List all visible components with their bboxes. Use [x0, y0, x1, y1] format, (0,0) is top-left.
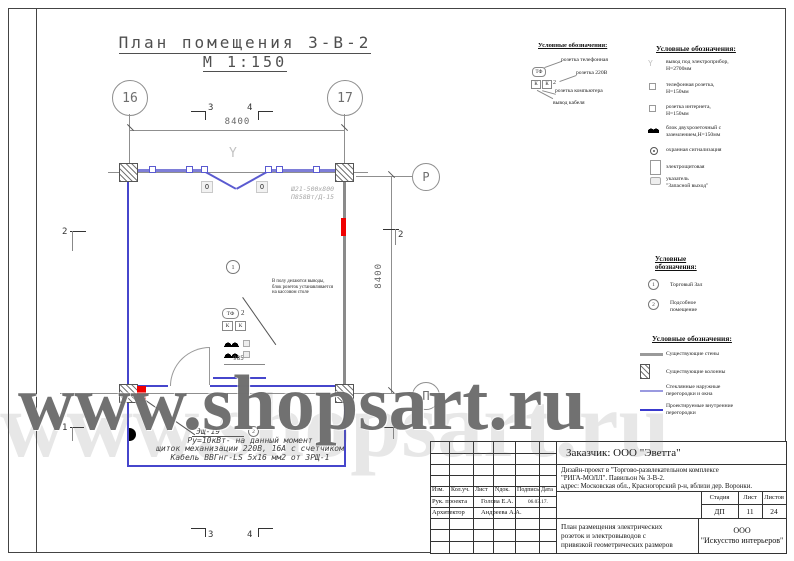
- tb-company-line1: ООО: [698, 526, 786, 536]
- legend-label: Н=2700мм: [666, 66, 691, 72]
- k-socket-label: К: [235, 321, 246, 331]
- legend-rooms: Условные обозначения: 1 Торговый Зал 2 П…: [648, 255, 758, 317]
- tb-line: [431, 475, 556, 476]
- column-top-left: [119, 163, 138, 182]
- drawing-title-line1: План помещения 3-В-2: [119, 33, 372, 54]
- electric-output-icon: Y: [648, 59, 653, 68]
- mark-tick: [259, 528, 273, 529]
- electric-output-symbol: Y: [229, 146, 237, 161]
- legend-label: указатель: [666, 176, 689, 182]
- tb-line: [473, 442, 474, 553]
- legend-title-line1: Условные: [655, 255, 686, 263]
- glass-wall-swatch: [640, 390, 663, 392]
- alarm-symbol-o: О: [201, 181, 213, 193]
- tf-count: 2: [241, 309, 245, 317]
- legend-label: телефонная розетка,: [666, 82, 714, 88]
- shield-label: Эщ-19: [196, 427, 220, 436]
- electric-room-icon: [650, 160, 661, 175]
- new-partition-swatch: [640, 409, 663, 411]
- legend-label: помещение: [670, 307, 697, 313]
- note-gray-line: П858Вт/Д-15: [291, 193, 334, 201]
- tb-stage-v: ДП: [701, 507, 738, 516]
- tb-line: [431, 453, 556, 454]
- counter-line: [213, 377, 266, 379]
- tb-sheet-title-line: План размещения электрических: [561, 523, 696, 532]
- legend-label: Стеклянные наружные: [666, 384, 720, 390]
- k-symbol: К: [531, 80, 541, 89]
- tb-col-data: Дата: [541, 487, 553, 493]
- grid-line: [344, 114, 345, 163]
- tb-date-1: 06.03.17.: [528, 499, 548, 505]
- tb-line: [539, 442, 540, 553]
- tb-company-line2: "Искусство интерьеров": [698, 536, 786, 546]
- wall-glass-top: [137, 169, 205, 172]
- tb-list-v: 11: [738, 507, 762, 516]
- drawing-title: План помещения 3-В-2 М 1:150: [100, 33, 390, 71]
- red-wall-mark: [341, 218, 346, 236]
- tb-line: [431, 518, 556, 519]
- glass-joint: [201, 166, 208, 173]
- legend-room-num: 1: [648, 279, 659, 290]
- existing-column-swatch: [640, 364, 650, 379]
- mark-tick: [205, 111, 206, 120]
- tb-line: [431, 507, 556, 508]
- mark-3-bottom: 3: [208, 530, 213, 540]
- double-socket-icon: [648, 126, 659, 133]
- dim-985-line: [224, 364, 265, 365]
- axis-bubble-Pi: П: [412, 382, 440, 410]
- legend-label: электрощитовая: [666, 164, 704, 170]
- tb-col-ndok: Nдок.: [495, 487, 510, 493]
- legend-label: заземлением,Н=150мм: [666, 132, 720, 138]
- mark-tick: [259, 111, 273, 112]
- drawing-scale: М 1:150: [203, 53, 287, 72]
- legend-label: вывод кабеля: [553, 100, 585, 106]
- leader-line: [559, 75, 576, 82]
- tb-project-line: адрес: Московская обл., Красногорский р-…: [561, 483, 783, 491]
- dimension-line-right: [391, 177, 392, 393]
- tb-project-line: Дизайн-проект в "Торгово-развлекательном…: [561, 467, 783, 475]
- note-power: Ру=10кВт- на данный момент щиток механиз…: [130, 437, 370, 462]
- n2-symbol: 2: [553, 80, 556, 86]
- section-mark-1-left: 1: [62, 423, 67, 433]
- legend-symbols: Условные обозначения: Y вывод под электр…: [648, 44, 758, 194]
- legend-label: Существующие стены: [666, 351, 719, 357]
- legend-sockets: Условные обозначения: розетка телефонная…: [530, 42, 645, 112]
- tb-line: [701, 504, 786, 505]
- tb-sheet-title: План размещения электрических розеток и …: [561, 523, 696, 550]
- tb-col-list: Лист: [475, 487, 488, 493]
- legend-title-line2: обозначения:: [655, 263, 697, 271]
- dim-right-value: 8400: [374, 263, 384, 289]
- legend-label: Н=150мм: [666, 111, 689, 117]
- mark-4-top: 4: [247, 103, 252, 113]
- column-bottom-right: [335, 384, 354, 403]
- glass-joint: [186, 166, 193, 173]
- door-leaf: [209, 347, 210, 385]
- note-gray-line: Ш21-500х800: [291, 185, 334, 193]
- glass-joint: [149, 166, 156, 173]
- grid-line: [60, 393, 412, 394]
- internet-socket-icon: [649, 105, 656, 112]
- mark-tick: [393, 427, 394, 439]
- alarm-icon: [650, 147, 658, 155]
- legend-title: Условные обозначения:: [538, 42, 607, 49]
- leader-line: [544, 61, 561, 68]
- mark-tick: [72, 231, 73, 251]
- grid-line: [108, 172, 368, 173]
- section-mark-2-left: 2: [62, 227, 67, 237]
- legend-walls: Условные обозначения: Существующие стены…: [640, 334, 785, 420]
- legend-label: охранная сигнализация: [666, 147, 722, 153]
- note-center: В полу делаются выводы, блок розеток уст…: [272, 279, 357, 296]
- mark-tick: [205, 528, 206, 537]
- tb-project: Дизайн-проект в "Торгово-развлекательном…: [561, 467, 783, 491]
- frame-left-margin-line: [36, 8, 37, 553]
- mark-tick: [383, 229, 399, 230]
- phone-socket-icon: [649, 83, 656, 90]
- k-socket-label: К: [222, 321, 233, 331]
- section-mark-2-right: 2: [398, 230, 403, 240]
- legend-label: Существующие колонны: [666, 369, 725, 375]
- dim-top-value: 8400: [200, 117, 275, 127]
- mark-tick: [258, 111, 259, 120]
- legend-label: "Запасной выход": [666, 183, 708, 189]
- tb-company: ООО "Искусство интерьеров": [698, 526, 786, 546]
- column-bottom-left: [119, 384, 138, 403]
- legend-title: Условные обозначения:: [652, 334, 732, 343]
- partition-internal: [210, 385, 344, 387]
- glass-joint: [265, 166, 272, 173]
- tb-col-izm: Изм.: [432, 487, 444, 493]
- tb-col-podpis: Подпись: [517, 487, 539, 493]
- tb-line: [515, 442, 516, 553]
- legend-label: розетка телефонная: [561, 57, 608, 63]
- legend-room-num: 2: [648, 299, 659, 310]
- mark-tick: [258, 528, 259, 537]
- legend-label: перегородки и окна: [666, 391, 712, 397]
- title-block: Изм. Кол.уч. Лист Nдок. Подпись Дата Рук…: [430, 441, 787, 554]
- tb-list-h: Лист: [738, 494, 762, 501]
- tb-role-1: Рук. проекта: [432, 498, 467, 505]
- socket-tag: [243, 351, 250, 358]
- tf-symbol: ТФ: [532, 67, 546, 77]
- tb-line: [556, 518, 786, 519]
- mark-4-bottom: 4: [247, 530, 252, 540]
- alarm-dot: [653, 150, 655, 152]
- tb-name-2: Андреева А.А.: [481, 509, 522, 516]
- mark-3-top: 3: [208, 103, 213, 113]
- existing-wall-swatch: [640, 353, 663, 356]
- grid-line: [356, 176, 412, 177]
- tb-stage-h: Стадия: [701, 494, 738, 501]
- legend-label: Н=150мм: [666, 89, 689, 95]
- k-symbol: К: [542, 80, 552, 89]
- drawing-sheet: План помещения 3-В-2 М 1:150 16 17 Р П 8…: [0, 0, 794, 561]
- legend-label: Проектируемые внутренние: [666, 403, 733, 409]
- axis-bubble-16: 16: [112, 80, 148, 116]
- legend-title: Условные обозначения:: [656, 44, 736, 53]
- alarm-symbol-o: О: [256, 181, 268, 193]
- tb-line: [556, 464, 786, 465]
- grid-line: [129, 114, 130, 163]
- section-mark-1-right: 1: [396, 423, 401, 433]
- legend-label: розетка 220В: [576, 70, 607, 76]
- note-power-line: Кабель ВВГнг-LS 5х16 мм2 от ЗРЩ-1: [130, 454, 370, 462]
- tb-line: [556, 442, 557, 553]
- tb-role-2: Архитектор: [432, 509, 465, 516]
- exit-sign-icon: [650, 177, 661, 185]
- tb-project-line: "РИГА-МОЛЛ". Павильон № 3-В-2.: [561, 475, 783, 483]
- tb-sheet-title-line: розеток и электровыводов с: [561, 532, 696, 541]
- note-gray: Ш21-500х800 П858Вт/Д-15: [291, 185, 334, 201]
- double-socket-icon: [224, 339, 239, 347]
- tb-col-koluch: Кол.уч.: [451, 487, 470, 493]
- tb-customer: Заказчик: ООО "Эветта": [566, 447, 681, 459]
- socket-tag: [243, 340, 250, 347]
- tb-name-1: Голова Е.А.: [481, 498, 513, 505]
- tb-line: [431, 496, 556, 497]
- axis-bubble-17: 17: [327, 80, 363, 116]
- legend-label: перегородки: [666, 410, 696, 416]
- wall-bottom: [127, 465, 346, 467]
- glass-joint: [276, 166, 283, 173]
- legend-label: Торговый Зал: [670, 282, 702, 288]
- legend-label: Подсобное: [670, 300, 696, 306]
- tb-line: [431, 529, 556, 530]
- note-center-line: на кассовом столе: [272, 290, 357, 296]
- tb-line: [431, 464, 556, 465]
- legend-label: розетка интернета,: [666, 104, 711, 110]
- room-number-1: 1: [226, 260, 240, 274]
- dim-985-value: 985: [233, 355, 244, 362]
- tb-line: [556, 491, 786, 492]
- tb-line: [431, 541, 556, 542]
- mark-tick: [72, 427, 73, 441]
- glass-joint: [313, 166, 320, 173]
- tb-listov-v: 24: [762, 507, 786, 516]
- dimension-line-top: [130, 130, 345, 131]
- electric-panel-symbol: [137, 386, 146, 401]
- legend-label: розетка компьютера: [555, 88, 603, 94]
- wall-left: [127, 181, 129, 467]
- tf-socket-label: ТФ: [222, 308, 239, 319]
- legend-label: блок двухрозеточный с: [666, 125, 721, 131]
- axis-bubble-P: Р: [412, 163, 440, 191]
- mark-tick: [191, 528, 205, 529]
- mark-tick: [395, 229, 396, 245]
- tb-sheet-title-line: привязкой геометрических размеров: [561, 541, 696, 550]
- tb-listov-h: Листов: [762, 494, 786, 501]
- legend-label: вывод под электроприбор,: [666, 59, 729, 65]
- mark-tick: [191, 111, 205, 112]
- column-top-right: [335, 163, 354, 182]
